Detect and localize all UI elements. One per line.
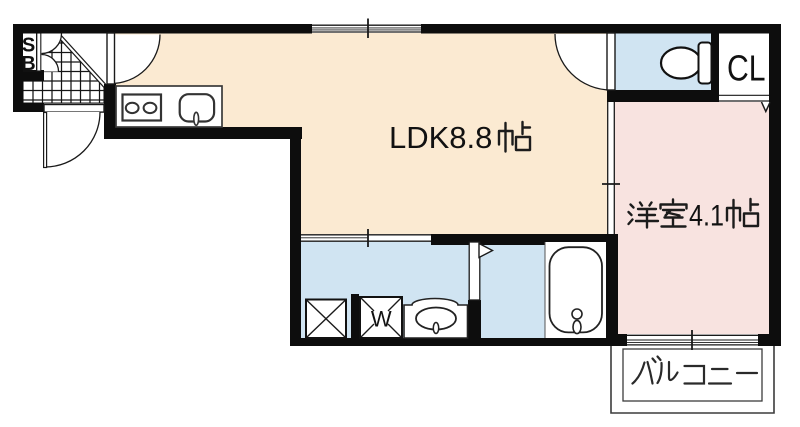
svg-text:W: W (371, 307, 392, 332)
svg-text:CL: CL (727, 48, 766, 89)
svg-text:4.1: 4.1 (689, 200, 724, 233)
svg-text:B: B (21, 53, 35, 75)
svg-text:LDK8.8: LDK8.8 (389, 120, 492, 155)
